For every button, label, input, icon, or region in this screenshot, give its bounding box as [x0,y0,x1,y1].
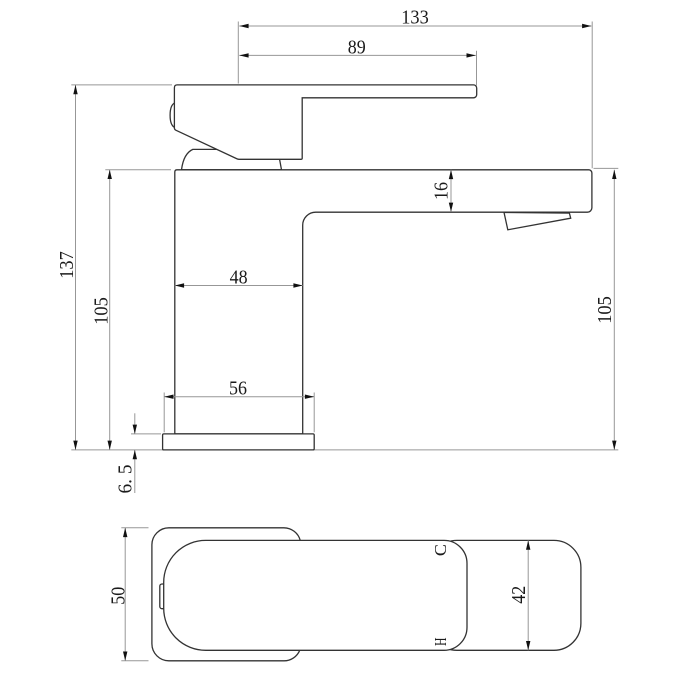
svg-text:16: 16 [431,182,453,200]
svg-text:105: 105 [594,296,616,324]
svg-text:42: 42 [508,586,530,604]
svg-text:89: 89 [348,36,366,58]
svg-text:H: H [431,637,450,646]
svg-text:56: 56 [229,378,247,400]
svg-text:133: 133 [401,7,429,29]
svg-text:6. 5: 6. 5 [115,465,137,494]
svg-text:C: C [431,544,450,556]
svg-text:105: 105 [90,297,112,325]
svg-text:137: 137 [56,251,78,279]
svg-text:50: 50 [107,587,129,605]
svg-text:48: 48 [230,267,248,289]
